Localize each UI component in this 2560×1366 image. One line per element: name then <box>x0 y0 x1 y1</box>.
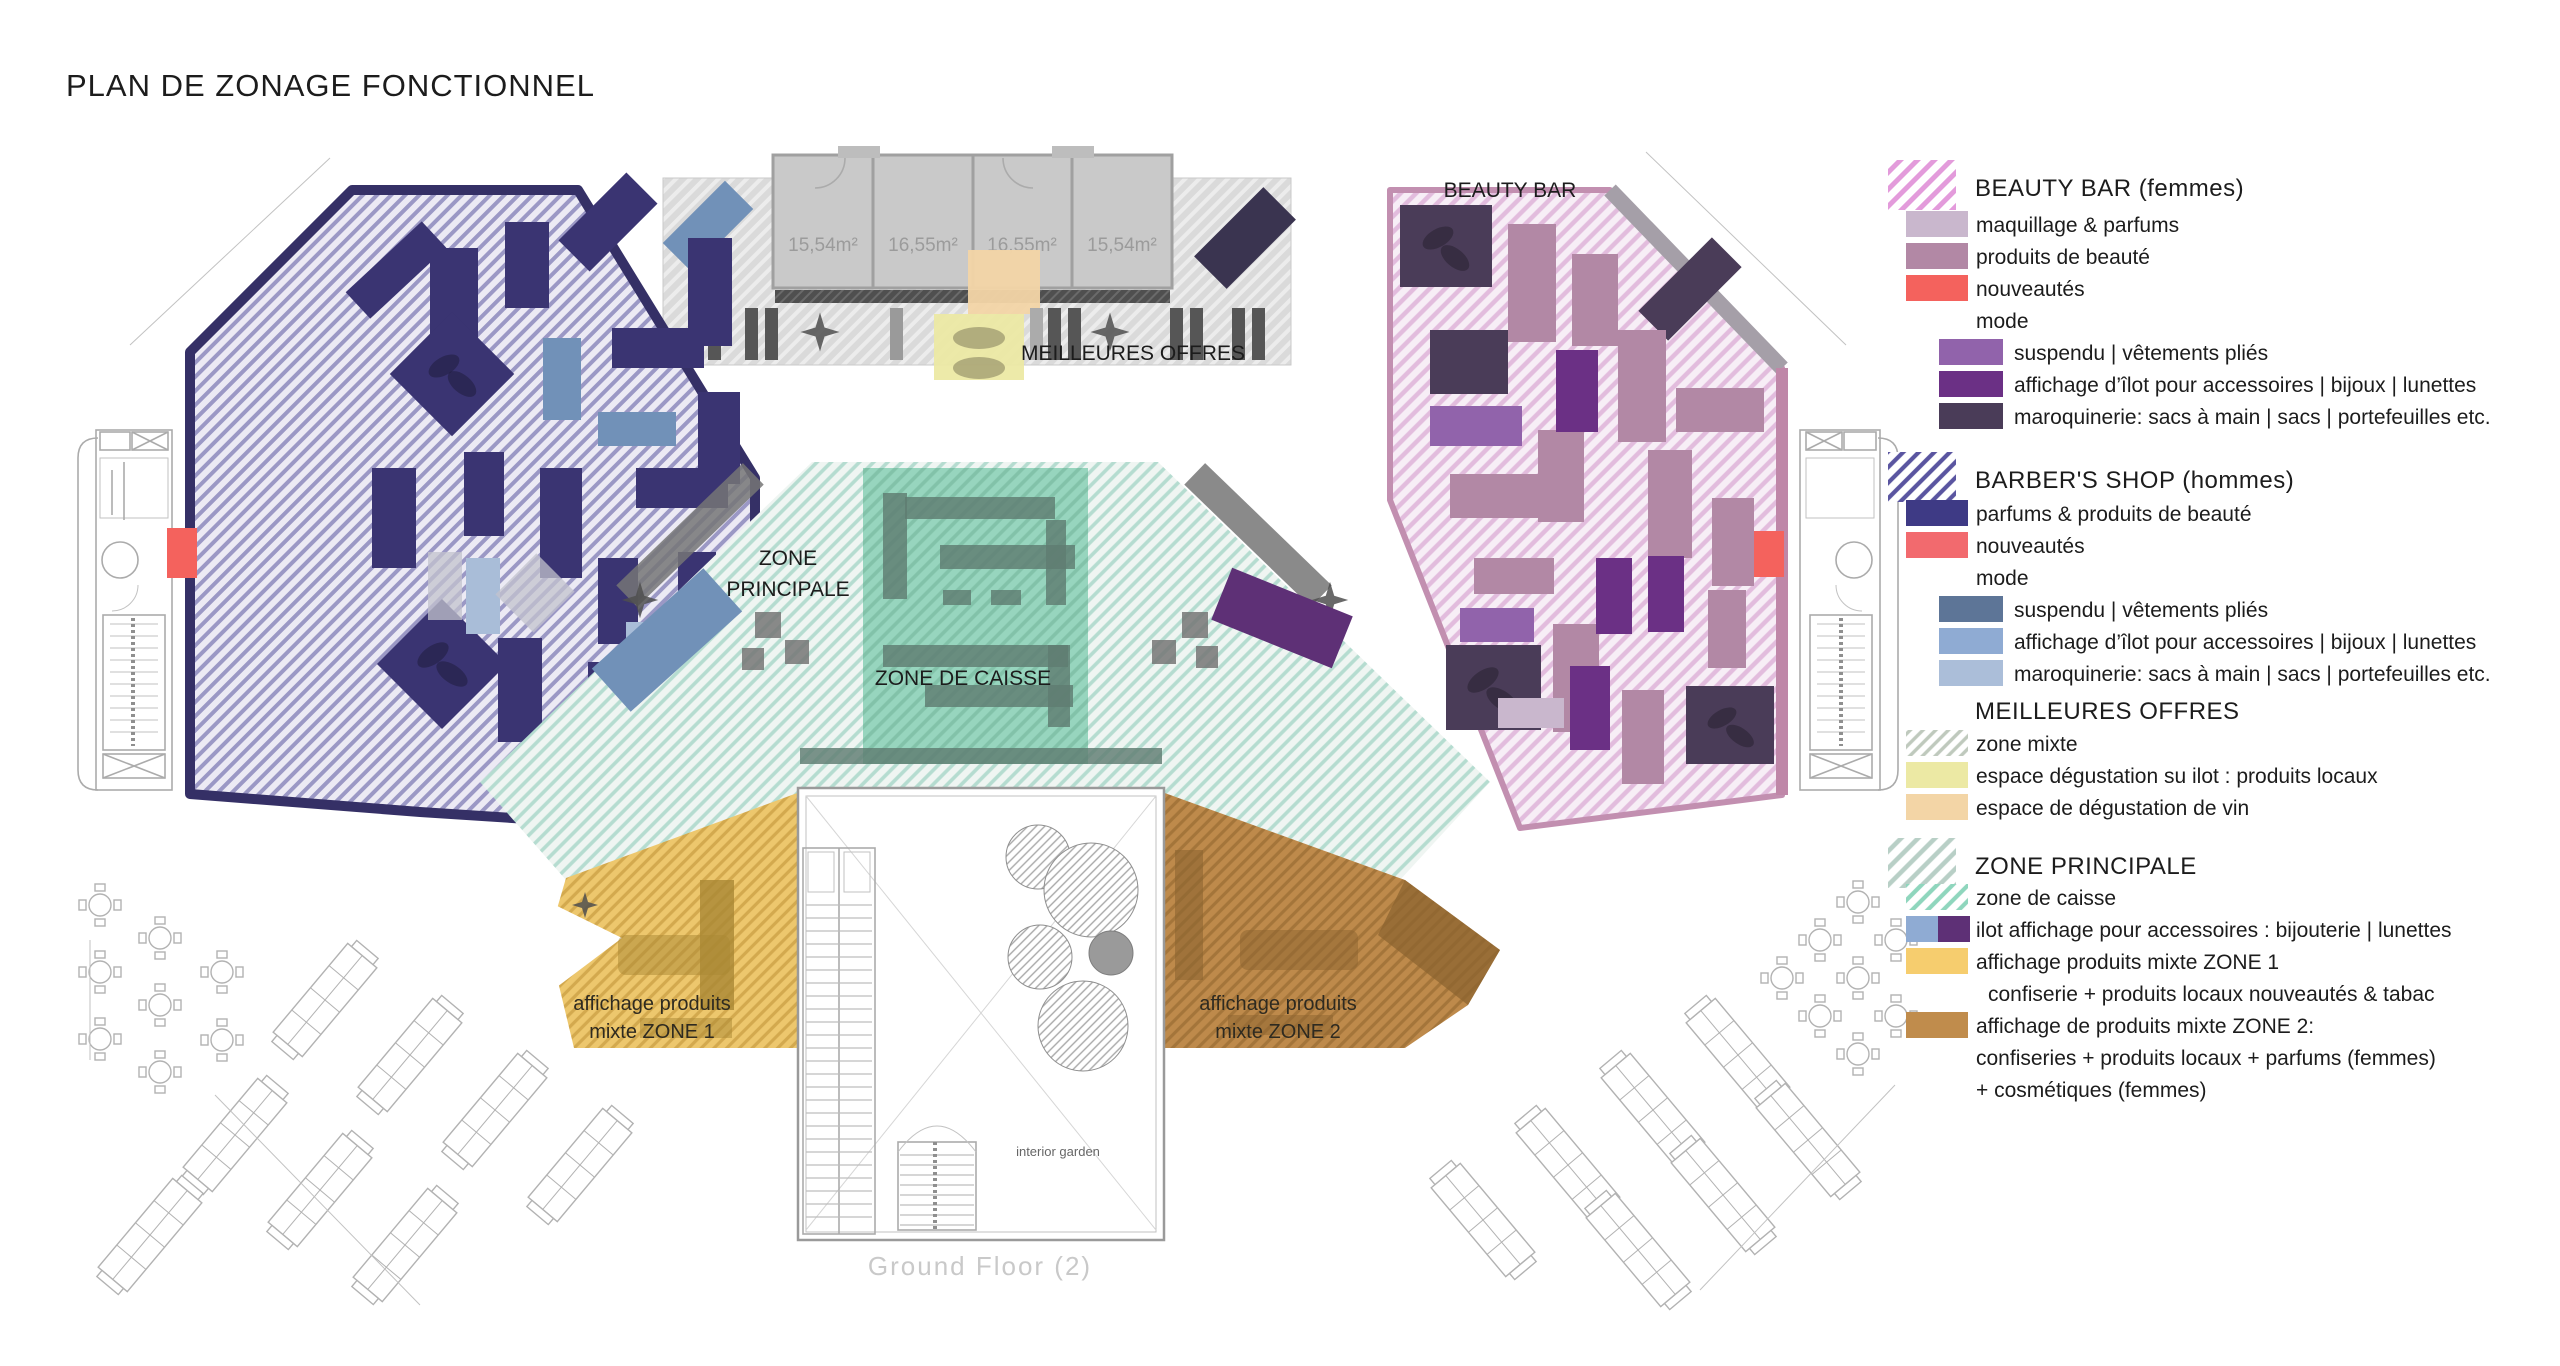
svg-text:affichage de produits mixte ZO: affichage de produits mixte ZONE 2: <box>1976 1015 2314 1038</box>
ground-floor-label: Ground Floor (2) <box>868 1251 1092 1281</box>
svg-text:mode: mode <box>1976 567 2029 590</box>
svg-text:maquillage & parfums: maquillage & parfums <box>1976 214 2179 237</box>
svg-text:ZONE PRINCIPALE: ZONE PRINCIPALE <box>1975 853 2197 880</box>
svg-text:suspendu | vêtements pliés: suspendu | vêtements pliés <box>2014 342 2268 365</box>
meilleures-offres-label: MEILLEURES OFFRES <box>1021 342 1245 365</box>
svg-text:confiserie + produits locaux n: confiserie + produits locaux nouveautés … <box>1988 983 2435 1006</box>
svg-text:confiseries + produits locaux: confiseries + produits locaux + parfums … <box>1976 1047 2436 1070</box>
room-area-label: 15,54m² <box>1087 235 1157 256</box>
interior-garden-label: interior garden <box>1016 1144 1100 1159</box>
zone-de-caisse-hatch-swatch <box>1906 884 1968 910</box>
svg-text:affichage d’îlot pour accessoi: affichage d’îlot pour accessoires | bijo… <box>2014 374 2476 397</box>
svg-text:maroquinerie: sacs à main | sa: maroquinerie: sacs à main | sacs | porte… <box>2014 406 2491 429</box>
zone-mixte-hatch-swatch <box>1906 730 1968 756</box>
zone-de-caisse-label: ZONE DE CAISSE <box>875 667 1051 690</box>
barbers-shop-hatch-swatch <box>1888 452 1956 502</box>
svg-text:mixte ZONE 1: mixte ZONE 1 <box>589 1021 715 1043</box>
zone-principale-hatch-swatch <box>1888 838 1956 888</box>
svg-text:PRINCIPALE: PRINCIPALE <box>726 578 849 601</box>
svg-text:nouveautés: nouveautés <box>1976 535 2085 558</box>
beauty-nouveautes-display <box>1754 531 1784 577</box>
svg-text:espace de dégustation de vin: espace de dégustation de vin <box>1976 797 2249 820</box>
interior-garden: interior garden <box>798 788 1164 1240</box>
floor-plan-sheet: PLAN DE ZONAGE FONCTIONNEL 15,54m² 16,55… <box>0 0 2560 1366</box>
svg-text:maroquinerie: sacs à main | sa: maroquinerie: sacs à main | sacs | porte… <box>2014 663 2491 686</box>
zone-meilleures-offres: 15,54m² 16,55m² 16,55m² 15,54m² MEILLEUR… <box>663 146 1296 380</box>
svg-text:MEILLEURES OFFRES: MEILLEURES OFFRES <box>1975 698 2240 725</box>
svg-text:produits de beauté: produits de beauté <box>1976 246 2150 269</box>
svg-text:suspendu | vêtements pliés: suspendu | vêtements pliés <box>2014 599 2268 622</box>
svg-text:nouveautés: nouveautés <box>1976 278 2085 301</box>
svg-text:mixte ZONE 2: mixte ZONE 2 <box>1215 1021 1341 1043</box>
svg-text:+ cosmétiques (femmes): + cosmétiques (femmes) <box>1976 1079 2207 1102</box>
svg-text:mode: mode <box>1976 310 2029 333</box>
room-area-label: 15,54m² <box>788 235 858 256</box>
svg-text:parfums & produits de beauté: parfums & produits de beauté <box>1976 503 2252 526</box>
room-area-label: 16,55m² <box>888 235 958 256</box>
svg-text:BEAUTY BAR (femmes): BEAUTY BAR (femmes) <box>1975 175 2244 202</box>
page-title: PLAN DE ZONAGE FONCTIONNEL <box>66 68 595 103</box>
zone1-label: affichage produits <box>573 993 731 1015</box>
floor-plan-drawing: PLAN DE ZONAGE FONCTIONNEL 15,54m² 16,55… <box>0 0 2560 1366</box>
legend-section-meilleures-offres: MEILLEURES OFFRES zone mixte espace dégu… <box>1906 698 2378 820</box>
svg-text:BARBER'S SHOP (hommes): BARBER'S SHOP (hommes) <box>1975 467 2294 494</box>
wine-tasting-area <box>968 250 1040 314</box>
svg-text:ilot affichage pour accessoire: ilot affichage pour accessoires : bijout… <box>1976 919 2452 942</box>
legend: BEAUTY BAR (femmes) maquillage & parfums… <box>1888 160 2491 1102</box>
svg-text:zone de caisse: zone de caisse <box>1976 887 2116 910</box>
svg-text:zone mixte: zone mixte <box>1976 733 2078 756</box>
legend-section-zone-principale: ZONE PRINCIPALE zone de caisse ilot affi… <box>1888 838 2452 1102</box>
svg-text:espace dégustation su ilot : p: espace dégustation su ilot : produits lo… <box>1976 765 2378 788</box>
zone-principale-label: ZONE <box>759 547 817 570</box>
terrace-right <box>1426 881 1917 1313</box>
svg-text:affichage produits mixte ZONE: affichage produits mixte ZONE 1 <box>1976 951 2279 974</box>
zone2-label: affichage produits <box>1199 993 1357 1015</box>
zone-beauty-bar-wing: BEAUTY BAR <box>1390 179 1784 828</box>
svg-text:affichage d’îlot pour accessoi: affichage d’îlot pour accessoires | bijo… <box>2014 631 2476 654</box>
beauty-bar-hatch-swatch <box>1888 160 1956 210</box>
legend-section-beauty-bar: BEAUTY BAR (femmes) maquillage & parfums… <box>1888 160 2491 429</box>
legend-section-barbers-shop: BARBER'S SHOP (hommes) parfums & produit… <box>1888 452 2491 686</box>
barber-nouveautes-display <box>167 528 197 578</box>
beauty-bar-label: BEAUTY BAR <box>1444 179 1577 202</box>
